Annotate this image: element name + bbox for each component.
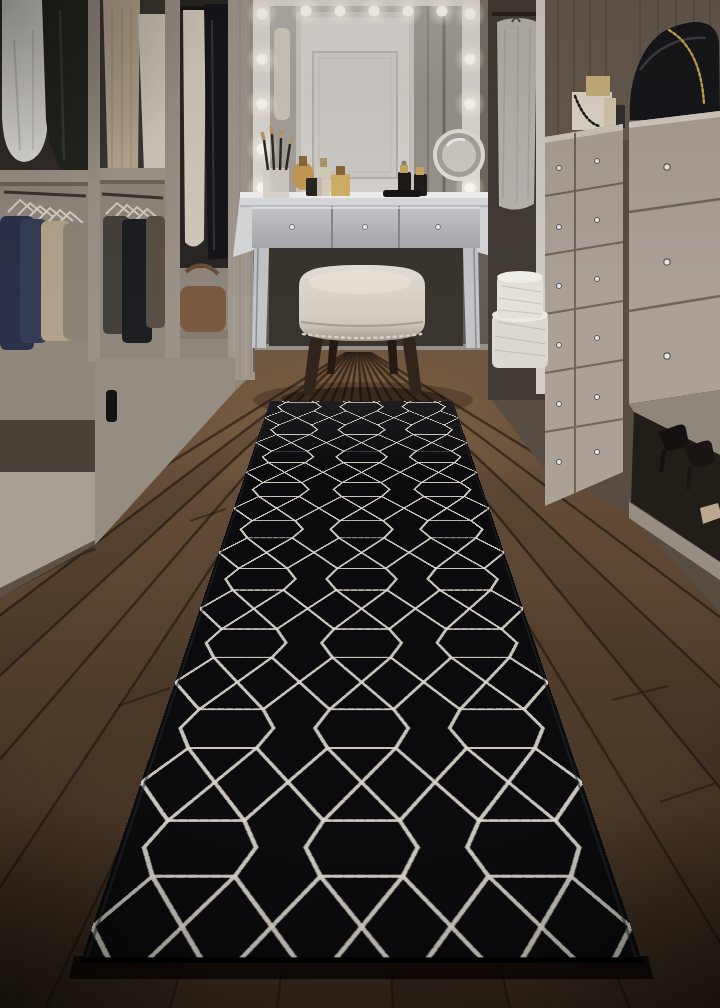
small-bottle: [604, 98, 616, 128]
drawer-bank-right: [629, 111, 720, 404]
divider-panel: [165, 0, 180, 370]
black-dress: [204, 4, 228, 260]
white-shirt: [2, 0, 50, 162]
drawer-bank-left: [545, 124, 623, 506]
walk-in-closet-scene: [0, 0, 720, 1008]
rug-edge: [80, 957, 643, 963]
shelf: [0, 170, 88, 184]
gold-box: [586, 76, 610, 96]
brush-cup: [263, 168, 289, 198]
drawer-knob: [435, 224, 440, 229]
drawer-knob: [362, 224, 367, 229]
brown-garment: [146, 216, 165, 328]
perfume-cap: [299, 156, 307, 166]
brush-roll: [383, 190, 421, 197]
drawer-knob: [289, 224, 294, 229]
shadow-under-clothes: [0, 420, 95, 472]
cream-dress: [183, 10, 206, 247]
hanging-tassel: [106, 390, 117, 422]
seat-highlight: [308, 270, 412, 294]
divider-panel: [88, 0, 100, 362]
grey-garment: [63, 223, 88, 339]
perfume-bottle-gold: [331, 174, 350, 196]
hat-boxes: [492, 271, 548, 368]
door-handle: [401, 160, 406, 165]
perfume-bottle-tall: [317, 166, 330, 196]
rug-sheen: [246, 401, 477, 473]
leather-bag: [180, 286, 226, 332]
shelf: [100, 168, 165, 182]
